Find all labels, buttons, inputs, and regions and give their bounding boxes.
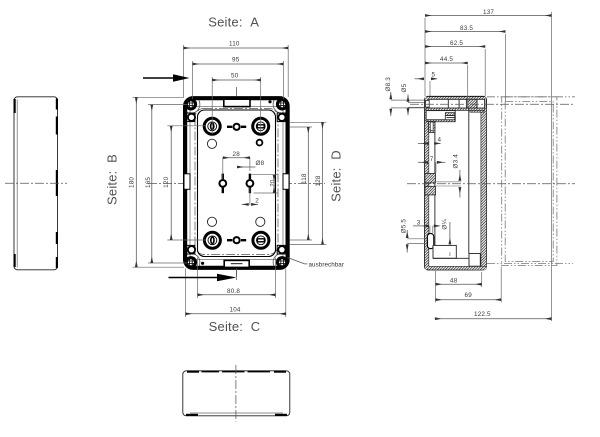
svg-text:Seite: B: Seite: B (105, 154, 120, 205)
svg-text:7: 7 (430, 156, 434, 163)
svg-text:Ø5.5: Ø5.5 (400, 219, 407, 234)
svg-text:118: 118 (301, 173, 308, 184)
svg-text:110: 110 (229, 41, 240, 48)
svg-text:165: 165 (145, 177, 152, 188)
svg-text:2: 2 (255, 197, 259, 204)
svg-text:83.5: 83.5 (460, 25, 473, 32)
svg-text:5: 5 (432, 72, 436, 79)
svg-text:44.5: 44.5 (440, 56, 453, 63)
svg-text:120: 120 (163, 176, 170, 187)
svg-text:Ø8: Ø8 (256, 160, 265, 167)
svg-text:Seite: D: Seite: D (328, 150, 343, 202)
svg-text:69: 69 (465, 292, 473, 299)
svg-text:180: 180 (129, 177, 136, 188)
svg-text:Ø¼: Ø¼ (441, 219, 448, 230)
svg-text:Seite: C: Seite: C (209, 319, 261, 334)
svg-text:104: 104 (230, 306, 241, 313)
svg-text:Seite: A: Seite: A (208, 14, 259, 29)
svg-text:128: 128 (315, 175, 322, 186)
svg-text:95: 95 (232, 57, 240, 64)
svg-text:28: 28 (233, 151, 241, 158)
svg-text:50: 50 (231, 73, 239, 80)
svg-text:122.5: 122.5 (474, 311, 491, 318)
svg-text:Ø3.4: Ø3.4 (453, 154, 460, 169)
svg-text:48: 48 (450, 278, 458, 285)
svg-text:3: 3 (417, 219, 421, 226)
svg-text:20: 20 (270, 179, 277, 187)
svg-text:80.8: 80.8 (227, 288, 240, 295)
svg-text:ausbrechbar: ausbrechbar (309, 261, 345, 268)
svg-text:4: 4 (438, 136, 442, 143)
svg-text:Ø5: Ø5 (401, 83, 408, 92)
svg-text:Ø8.3: Ø8.3 (385, 77, 392, 92)
svg-text:137: 137 (483, 9, 494, 16)
svg-text:62.5: 62.5 (450, 40, 463, 47)
